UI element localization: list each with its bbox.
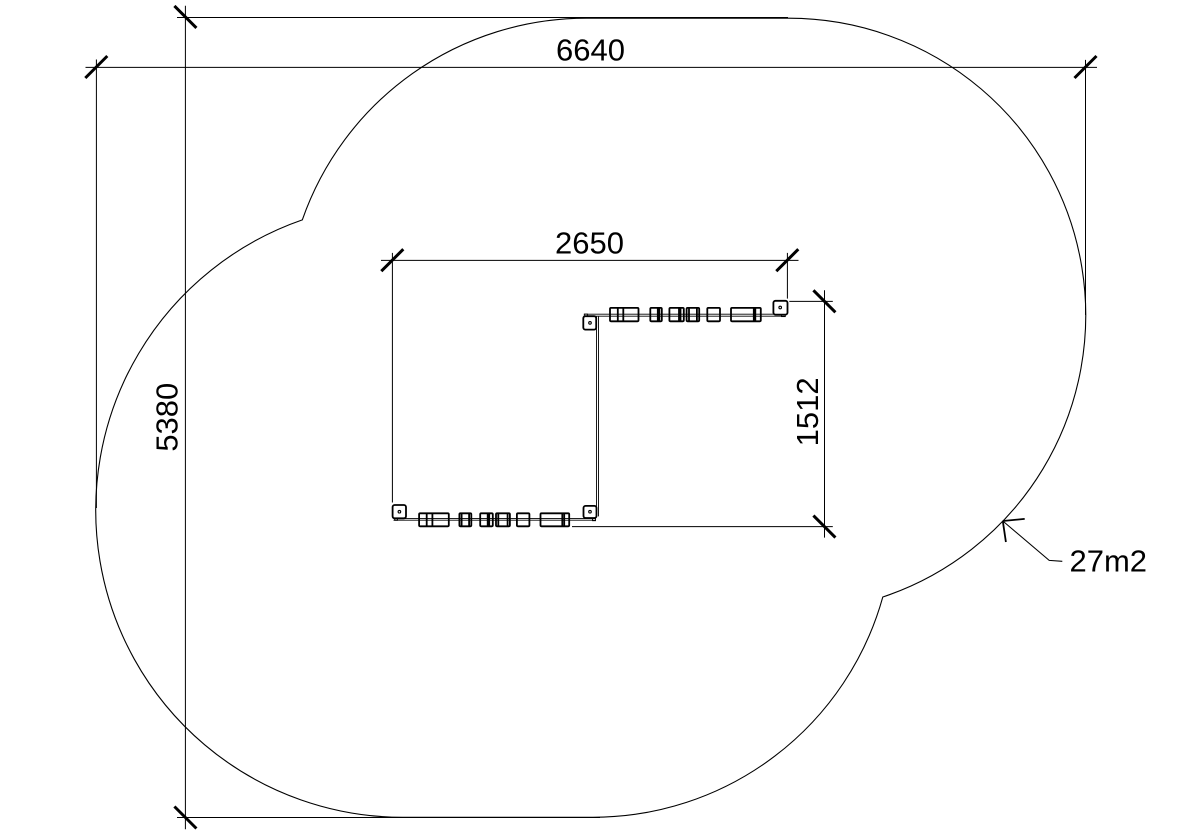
svg-text:6640: 6640 (556, 32, 625, 67)
svg-text:1512: 1512 (790, 377, 825, 446)
svg-text:27m2: 27m2 (1070, 544, 1148, 579)
svg-text:2650: 2650 (555, 225, 624, 260)
svg-text:5380: 5380 (150, 383, 185, 452)
